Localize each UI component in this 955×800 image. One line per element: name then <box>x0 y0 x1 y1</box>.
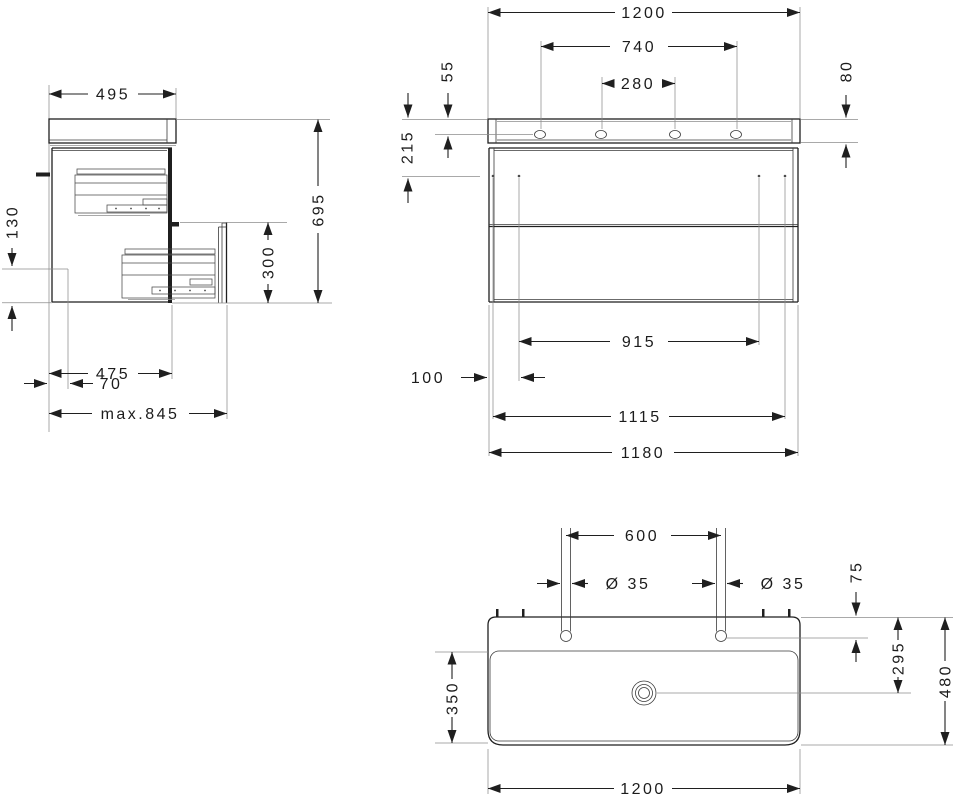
front-cabinet-outline <box>489 148 798 302</box>
taphole-3 <box>670 131 681 139</box>
dim-label-total-height: 695 <box>311 192 328 226</box>
front-view: 1200 740 280 55 215 80 <box>400 5 859 462</box>
dim-basin-width: 1200 <box>488 5 800 22</box>
dim-label-taphole-distance: 600 <box>625 528 659 545</box>
dim-outer-taphole-span: 740 <box>541 39 737 56</box>
dim-label-cabinet-width: 1180 <box>621 445 665 462</box>
dim-bowl-depth: 350 <box>445 652 462 743</box>
taphole-1 <box>535 131 546 139</box>
upper-drawer <box>75 169 167 216</box>
dim-label-siphon-clearance: 130 <box>5 205 22 239</box>
dim-label-taphole-edge-offset: 75 <box>849 561 866 584</box>
top-extension-lines <box>435 618 953 795</box>
dim-label-basin-total-depth: 480 <box>938 664 955 698</box>
top-view: 600 Ø 35 Ø 35 75 295 480 <box>435 528 955 798</box>
bowl-outline <box>490 651 798 741</box>
dim-label-mounting-drop: 215 <box>400 130 417 164</box>
deck-mark-4 <box>788 609 791 617</box>
dim-basin-front-height: 80 <box>839 60 856 168</box>
dim-drain-offset: 295 <box>891 618 908 694</box>
dim-label-taphole-drop: 55 <box>440 60 457 83</box>
dim-inner-taphole-span: 280 <box>602 76 675 93</box>
side-cabinet-outline <box>52 148 179 303</box>
dim-drawer-front-height: 300 <box>261 223 278 304</box>
dim-washbasin-depth: 495 <box>49 87 176 104</box>
dim-mounting-drop: 215 <box>400 93 417 203</box>
dim-total-height: 695 <box>311 120 328 304</box>
runner-mount-dot-1 <box>492 175 495 178</box>
dim-taphole-edge-offset: 75 <box>849 561 866 662</box>
dim-label-runner-span: 915 <box>622 334 656 351</box>
dim-label-max-pullout: max.845 <box>101 406 180 423</box>
vanity-technical-drawing: 495 130 695 300 70 475 <box>0 0 955 800</box>
drain-hole <box>632 681 656 705</box>
deck-mark-3 <box>762 609 765 617</box>
dim-cabinet-width: 1180 <box>489 445 798 462</box>
dim-label-drain-offset: 295 <box>891 641 908 675</box>
front-basin-outline <box>488 119 800 143</box>
runner-mount-dot-2 <box>518 175 521 178</box>
dim-label-cabinet-depth: 475 <box>96 366 130 383</box>
front-extension-lines <box>402 7 858 456</box>
dim-label-side-offset: 100 <box>411 370 445 387</box>
dim-siphon-clearance-height: 130 <box>5 205 22 331</box>
dim-label-drawer-front-height: 300 <box>261 245 278 279</box>
dim-taphole-drop: 55 <box>440 60 457 158</box>
taphole-4 <box>731 131 742 139</box>
dim-taphole-dia-right: Ø 35 <box>692 576 805 593</box>
dim-label-taphole-dia-right: Ø 35 <box>761 576 806 593</box>
technical-drawing-page: 495 130 695 300 70 475 <box>0 0 955 800</box>
dim-inner-span: 1115 <box>493 409 785 426</box>
dim-side-offset: 100 <box>411 370 545 387</box>
wall-mounting-bracket-mark <box>36 173 50 177</box>
runner-mount-dot-3 <box>758 175 761 178</box>
deck-mark-1 <box>496 609 499 617</box>
dim-label-bowl-depth: 350 <box>445 681 462 715</box>
taphole-left <box>561 528 572 642</box>
taphole-2 <box>596 131 607 139</box>
drawer-gap-mark <box>171 222 179 227</box>
side-basin-outline <box>49 119 176 146</box>
top-basin-outline <box>488 609 800 745</box>
dim-label-washbasin-depth: 495 <box>96 87 130 104</box>
dim-taphole-distance: 600 <box>566 528 721 545</box>
dim-label-inner-span: 1115 <box>618 409 661 426</box>
dim-label-basin-front-height: 80 <box>839 60 856 83</box>
dim-top-basin-width: 1200 <box>488 781 800 798</box>
dim-label-top-basin-width: 1200 <box>620 781 666 798</box>
dim-basin-total-depth: 480 <box>938 618 955 746</box>
dim-label-taphole-dia-left: Ø 35 <box>606 576 651 593</box>
dim-label-basin-width: 1200 <box>621 5 667 22</box>
dim-cabinet-depth: 475 <box>49 366 172 383</box>
drawer-front-panel-extended <box>219 222 227 303</box>
deck-mark-2 <box>522 609 525 617</box>
side-view: 495 130 695 300 70 475 <box>2 85 332 432</box>
dim-runner-span: 915 <box>519 334 759 351</box>
taphole-right <box>716 528 727 642</box>
dim-taphole-dia-left: Ø 35 <box>537 576 650 593</box>
dim-label-outer-taphole-span: 740 <box>622 39 656 56</box>
dim-max-pullout: max.845 <box>49 406 227 423</box>
dim-label-inner-taphole-span: 280 <box>621 76 655 93</box>
runner-mount-dot-4 <box>784 175 787 178</box>
